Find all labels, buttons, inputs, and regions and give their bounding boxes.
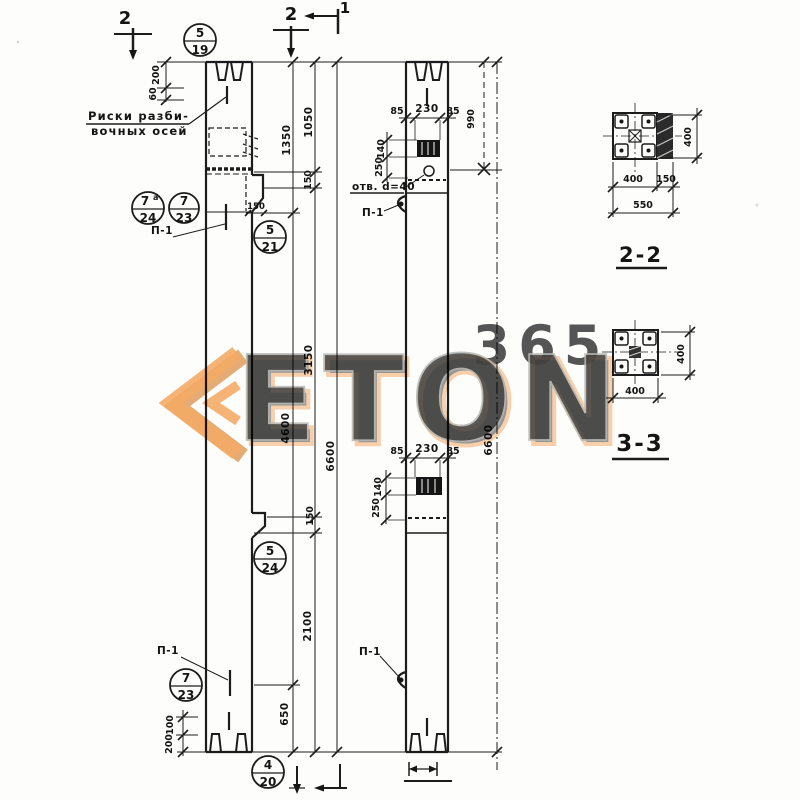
dim-85: 85 (446, 106, 459, 117)
svg-text:7: 7 (182, 671, 190, 685)
top-fork (415, 62, 442, 80)
svg-text:24: 24 (140, 211, 157, 225)
svg-text:а: а (153, 193, 158, 202)
callout-5-21: 5 21 (254, 221, 286, 254)
callout-5-24: 5 24 (254, 542, 286, 575)
cut-2-mid-label: 2 (285, 4, 298, 25)
callout-7a-24: 7 а 24 (132, 192, 164, 225)
svg-text:20: 20 (260, 775, 277, 789)
svg-text:21: 21 (262, 240, 279, 254)
hook-label: П-1 (151, 225, 173, 237)
dim-1050: 1050 (303, 106, 315, 137)
dim-200: 200 (151, 65, 162, 85)
svg-text:23: 23 (176, 211, 193, 225)
svg-text:19: 19 (192, 43, 209, 57)
hook-label: П-1 (362, 207, 384, 219)
bottom-fork (410, 734, 446, 752)
hook-note-left: П-1 П-1 (151, 224, 228, 680)
dim-230: 230 (415, 103, 438, 115)
axis-note-line2: вочных осей (91, 124, 188, 138)
watermark-text: ETON (236, 330, 624, 468)
dim-2100: 2100 (302, 610, 314, 641)
corbel-section-hatch (657, 113, 673, 159)
hole-40 (424, 166, 434, 176)
svg-text:5: 5 (266, 544, 274, 558)
dim-250: 250 (371, 498, 382, 518)
section-2-2: 400 400 150 550 2-2 (603, 103, 702, 268)
dim-s22-total: 550 (633, 200, 653, 211)
dim-60: 60 (148, 87, 159, 101)
dim-650: 650 (279, 702, 291, 725)
dim-150: 150 (305, 506, 316, 526)
ledge-profile (252, 513, 265, 538)
hidden-detail (209, 128, 246, 156)
watermark: 365 ETON ETON (171, 314, 628, 472)
dim-85: 85 (390, 106, 403, 117)
bottom-detail-mark (404, 762, 452, 781)
dim-1350: 1350 (281, 124, 293, 155)
callout-4-20: 4 20 (252, 756, 284, 789)
dim-140: 140 (376, 139, 387, 159)
axis-note-line1: Риски разби- (88, 109, 189, 123)
scan-speck (17, 41, 19, 43)
scan-speck (756, 204, 759, 207)
svg-text:5: 5 (196, 26, 204, 40)
blueprint-canvas: 2 2 1 (0, 0, 800, 800)
dim-100: 100 (165, 715, 176, 735)
embedded-plate (416, 477, 442, 495)
svg-text:24: 24 (262, 561, 279, 575)
svg-text:7: 7 (180, 194, 188, 208)
dim-s33-height: 400 (676, 344, 687, 364)
bottom-fork (210, 734, 247, 752)
dim-s22-height: 400 (683, 127, 694, 147)
hook-label: П-1 (157, 645, 179, 657)
section-2-2-title: 2-2 (619, 243, 663, 267)
svg-text:4: 4 (264, 758, 272, 772)
cut-2-left-arrow-icon (129, 50, 137, 60)
hook-label: П-1 (359, 646, 381, 658)
dim-990: 990 (466, 109, 477, 129)
callout-7-23-bottom: 7 23 (170, 669, 202, 702)
top-fork (216, 62, 243, 80)
cut-1-label: 1 (340, 0, 350, 17)
callout-7-23: 7 23 (169, 193, 199, 225)
dim-150: 150 (303, 170, 314, 190)
dim-corbel-150: 150 (247, 202, 265, 212)
dim-s33-width: 400 (625, 386, 645, 397)
dim-200: 200 (164, 734, 175, 754)
dim-140: 140 (373, 477, 384, 497)
dim-250: 250 (374, 157, 385, 177)
cut-1-arrow-icon (304, 13, 314, 20)
dim-s22-width: 400 (623, 174, 643, 185)
cut-2-mid-arrow-icon (287, 48, 295, 58)
svg-text:5: 5 (266, 223, 274, 237)
svg-text:23: 23 (178, 688, 195, 702)
svg-text:7: 7 (141, 194, 149, 208)
cut-2-left-label: 2 (119, 8, 132, 29)
dim-s22-strip: 150 (656, 174, 676, 185)
callout-5-19: 5 19 (184, 24, 216, 57)
